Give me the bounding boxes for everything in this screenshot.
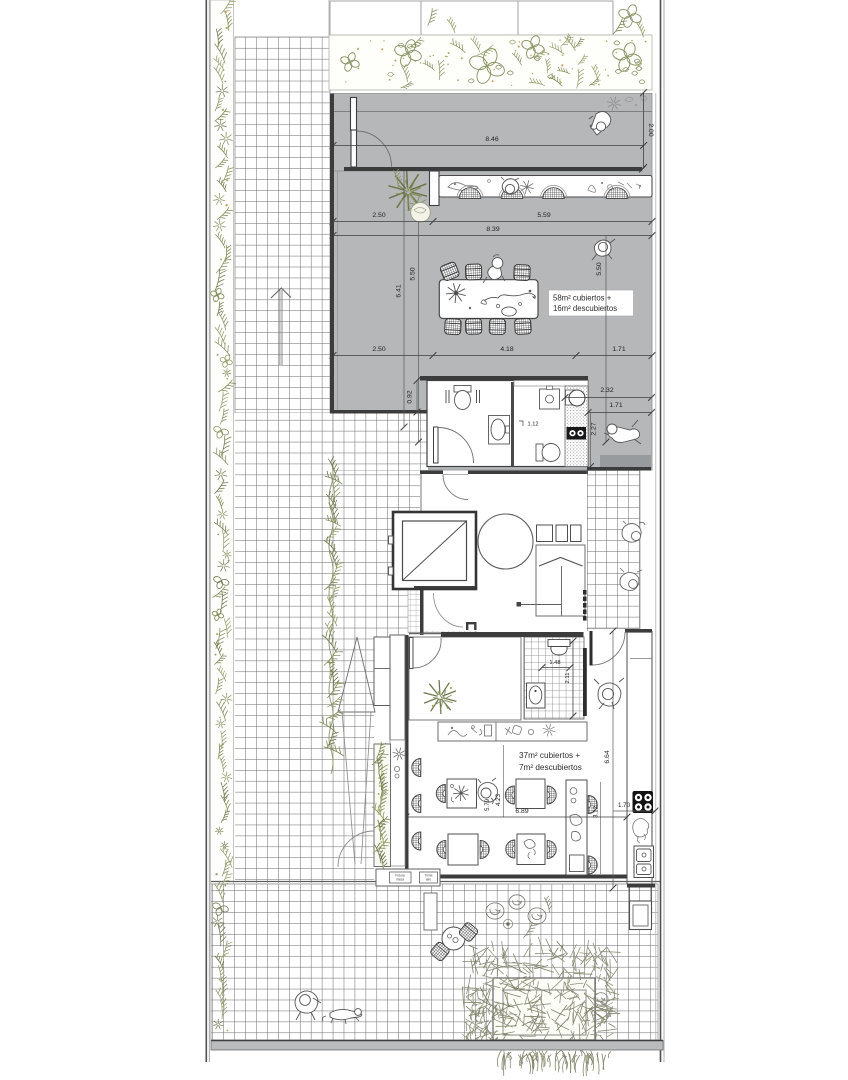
svg-text:2.27: 2.27 — [591, 422, 598, 435]
svg-text:6.64: 6.64 — [604, 750, 611, 763]
svg-text:1.48: 1.48 — [549, 660, 560, 666]
svg-text:1.70: 1.70 — [618, 802, 631, 809]
svg-text:4.18: 4.18 — [500, 346, 513, 353]
svg-text:2.50: 2.50 — [372, 346, 385, 353]
svg-text:2.00: 2.00 — [647, 123, 654, 136]
svg-text:6.41: 6.41 — [396, 284, 403, 297]
svg-text:8.39: 8.39 — [486, 226, 499, 233]
svg-text:37m² cubiertos +: 37m² cubiertos + — [519, 751, 580, 760]
svg-text:mesa: mesa — [396, 878, 404, 882]
svg-text:3.12: 3.12 — [593, 805, 600, 818]
svg-text:2.50: 2.50 — [372, 212, 385, 219]
svg-text:58m² cubiertos +: 58m² cubiertos + — [553, 294, 612, 303]
svg-text:1.71: 1.71 — [609, 402, 622, 409]
svg-text:6.89: 6.89 — [515, 808, 528, 815]
svg-text:0.92: 0.92 — [407, 390, 414, 403]
svg-text:aire: aire — [426, 878, 432, 882]
svg-text:16m² descubiertos: 16m² descubiertos — [553, 304, 617, 313]
svg-text:5.59: 5.59 — [537, 212, 550, 219]
svg-text:1.12: 1.12 — [528, 422, 539, 428]
svg-text:8.46: 8.46 — [485, 136, 498, 143]
svg-text:2.32: 2.32 — [600, 387, 613, 394]
svg-text:2.11: 2.11 — [565, 673, 571, 684]
svg-text:1.71: 1.71 — [612, 346, 625, 353]
svg-text:4.23: 4.23 — [495, 793, 502, 806]
svg-text:5.50: 5.50 — [410, 267, 417, 280]
svg-text:7m² descubiertos: 7m² descubiertos — [519, 763, 582, 772]
svg-text:5.79: 5.79 — [484, 798, 491, 811]
svg-text:5.50: 5.50 — [596, 262, 603, 275]
